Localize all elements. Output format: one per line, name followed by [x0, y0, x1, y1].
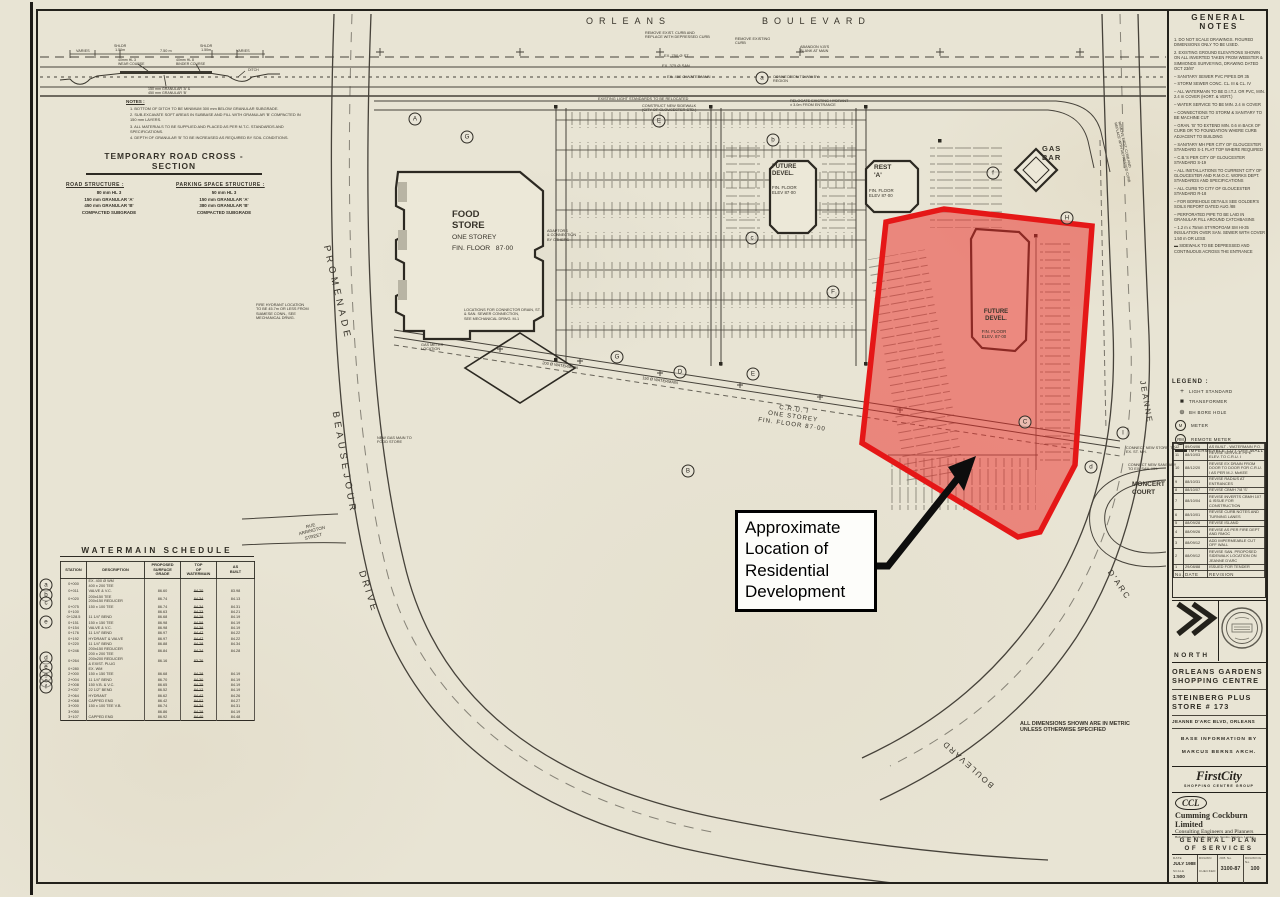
base-info-line2: MARCUS BERNS ARCH. — [1172, 750, 1266, 755]
watermain-cell: 86.16 — [145, 657, 181, 667]
revision-cell: 6 — [1174, 509, 1184, 520]
watermain-cell: 200x200 REDUCER & EXIST. PLUG — [87, 657, 145, 667]
scale-value: 1:500 — [1173, 874, 1185, 879]
watermain-cell — [145, 579, 181, 589]
watermain-cell: 3+107 — [61, 714, 87, 720]
legend-title: LEGEND : — [1172, 379, 1266, 385]
watermain-row: 0+020200x150 TEE 200x150 REDUCER86.7484.… — [61, 594, 255, 604]
revision-cell: 88/09/26 — [1184, 527, 1208, 538]
legend-label: METER — [1191, 423, 1208, 428]
legend-item: ■TRANSFORMER — [1175, 398, 1266, 405]
legend-label: LIGHT STANDARD — [1189, 389, 1233, 394]
title-block-fields: DATE JULY 1988 SCALE 1:500 DRAWN CHECKED… — [1172, 854, 1266, 883]
base-info-block: BASE INFORMATION BY MARCUS BERNS ARCH. — [1172, 728, 1266, 767]
revision-cell: REVISE AS PER FIRE DEPT AND RMOC — [1208, 527, 1265, 538]
revision-table-header: No.DATEREVISION — [1174, 571, 1265, 578]
firstcity-logo-block: FirstCity SHOPPING CENTRE GROUP — [1172, 766, 1266, 793]
revision-cell: 88/10/31 — [1184, 476, 1208, 487]
watermain-cell: 86.74 — [145, 594, 181, 604]
cross-section-note: 4. DEPTH OF GRANULAR 'B' TO BE INCREASED… — [130, 136, 308, 141]
watermain-cell: 84.24 — [181, 647, 217, 657]
revision-row: 788/10/04REVISE INVERTS CBMH 107 & ISSUE… — [1174, 494, 1265, 509]
north-arrow-icon — [1172, 601, 1218, 641]
watermain-cell — [217, 579, 255, 589]
watermain-schedule-header: STATIONDESCRIPTIONPROPOSED SURFACE GRADE… — [61, 562, 255, 579]
ccl-firm-block: CCL Cumming Cockburn Limited Consulting … — [1172, 792, 1266, 835]
cross-section-notes: 1. BOTTOM OF DITCH TO BE MINIMUM 300 mm … — [130, 107, 308, 143]
parking-structure-block: PARKING SPACE STRUCTURE : 50 mm HL 3 150… — [176, 182, 272, 216]
watermain-cell: 86.92 — [145, 714, 181, 720]
revision-cell: REVISE SERVICE PIPE ELEV. TO C.R.U. I — [1208, 450, 1265, 461]
legend-symbol-sq: ■ — [1175, 398, 1189, 405]
revision-row: 988/10/31REVISE RADIUS AT ENTRANCES — [1174, 476, 1265, 487]
legend-item: +LIGHT STANDARD — [1175, 388, 1266, 395]
watermain-row: 0+246200x150 REDUCER 200 x 200 TEE86.848… — [61, 647, 255, 657]
watermain-cell: 0+264 — [61, 657, 87, 667]
road-structure-block: ROAD STRUCTURE : 80 mm HL 3 150 mm GRANU… — [66, 182, 152, 216]
watermain-header-cell: STATION — [61, 562, 87, 579]
legend-item: ⊕BH BORE HOLE — [1175, 408, 1266, 416]
revision-cell: 88/10/04 — [1184, 494, 1208, 509]
project-title-block: ORLEANS GARDENS SHOPPING CENTRE STEINBER… — [1172, 662, 1266, 724]
revision-header-cell: DATE — [1184, 571, 1208, 578]
general-note-item: 1. DO NOT SCALE DRAWINGS. FIGURED DIMENS… — [1174, 37, 1266, 47]
general-note-item: – ALL INSTALLATIONS TO CURRENT CITY OF G… — [1174, 168, 1266, 184]
watermain-cell: EX. 400 Ø WM 400 x 200 TEE — [87, 579, 145, 589]
revision-cell: 2 — [1174, 549, 1184, 564]
revision-cell: 11 — [1174, 450, 1184, 461]
legend-symbol-bh: ⊕ — [1175, 408, 1189, 416]
revision-cell: 9 — [1174, 476, 1184, 487]
revision-cell: 3 — [1174, 538, 1184, 549]
revision-row: 688/10/01REVISE CURB NOTES AND TURNING L… — [1174, 509, 1265, 520]
firstcity-subtitle: SHOPPING CENTRE GROUP — [1172, 784, 1266, 788]
revision-row: 388/09/12ADD IMPERMEABLE CUT OFF WALL — [1174, 538, 1265, 549]
watermain-header-cell: AS BUILT — [217, 562, 255, 579]
drawing-number-value: 100 — [1244, 866, 1266, 872]
legend-label: BH BORE HOLE — [1189, 410, 1227, 415]
ccl-firm-name: Cumming Cockburn Limited — [1175, 811, 1266, 829]
watermain-cell: 200x150 TEE 200x150 REDUCER — [87, 594, 145, 604]
revision-table: 1289/04/06AS BUILT - WATERMAIN P.O.1188/… — [1172, 442, 1266, 598]
watermain-cell: CAPPED END — [87, 714, 145, 720]
cross-section-note: 1. BOTTOM OF DITCH TO BE MINIMUM 300 mm … — [130, 107, 308, 112]
watermain-header-cell: TOP OF WATERMAIN — [181, 562, 217, 579]
general-note-item: – SANITARY SEWER PVC PIPES DR 35 — [1174, 74, 1266, 79]
revision-cell: ADD IMPERMEABLE CUT OFF WALL — [1208, 538, 1265, 549]
revision-cell: 88/09/12 — [1184, 549, 1208, 564]
cross-section-title: TEMPORARY ROAD CROSS - SECTION — [86, 151, 262, 175]
general-note-item: – WATER SERVICE TO BE MIN. 2.4 m COVER — [1174, 102, 1266, 107]
panel-divider — [1167, 9, 1169, 884]
north-arrow-cell: NORTH — [1172, 601, 1218, 661]
revision-cell: REVISE SAN. PROPOSED SIDEWALK LOCATION O… — [1208, 549, 1265, 564]
revision-cell: REVISE CURB NOTES AND TURNING LANES — [1208, 509, 1265, 520]
watermain-schedule-table: STATIONDESCRIPTIONPROPOSED SURFACE GRADE… — [60, 561, 255, 721]
drawing-sheet: ORLEANSBOULEVARDPROMENADEBEAUSEJOURDRIVE… — [0, 0, 1280, 897]
project-address: JEANNE D'ARC BLVD, ORLEANS — [1172, 719, 1266, 724]
general-note-item: – C.B.'S PER CITY OF GLOUCESTER STANDARD… — [1174, 155, 1266, 165]
date-value: JULY 1988 — [1173, 861, 1196, 866]
watermain-cell: 200x150 REDUCER 200 x 200 TEE — [87, 647, 145, 657]
legend-symbol-plus: + — [1175, 388, 1189, 395]
cross-section-note: 2. SUB-EXCAVATE SOFT AREAS IN SUBBASE AN… — [130, 113, 308, 123]
cross-section-note: 3. ALL MATERIALS TO BE SUPPLIED AND PLAC… — [130, 125, 308, 135]
watermain-header-cell: DESCRIPTION — [87, 562, 145, 579]
engineer-stamp-icon — [1219, 601, 1265, 657]
legend-item: MMETER — [1175, 420, 1266, 431]
watermain-schedule-title: WATERMAIN SCHEDULE — [60, 546, 254, 557]
revision-row: 1088/12/20REVISE EX DRAIN FROM DOOR TO D… — [1174, 461, 1265, 476]
watermain-cell: 84.40 — [181, 714, 217, 720]
firstcity-logo: FirstCity — [1172, 769, 1266, 784]
general-note-item: – FOR BOREHOLE DETAILS SEE GOLDER'S SOIL… — [1174, 199, 1266, 209]
revision-row: 488/09/26REVISE AS PER FIRE DEPT AND RMO… — [1174, 527, 1265, 538]
ccl-logo: CCL — [1175, 796, 1207, 810]
project-store: STEINBERG PLUS STORE # 173 — [1172, 693, 1266, 712]
general-note-item: ▬ SIDEWALK TO BE DEPRESSED AND CONTINUOU… — [1174, 243, 1266, 253]
revision-cell: 88/09/12 — [1184, 538, 1208, 549]
general-note-item: – CONNECTIONS TO STORM & SANITARY TO BE … — [1174, 110, 1266, 120]
watermain-cell — [217, 657, 255, 667]
checked-label: CHECKED — [1199, 869, 1216, 873]
revision-cell: 4 — [1174, 527, 1184, 538]
revision-cell: 88/12/20 — [1184, 461, 1208, 476]
legend-symbol-circ: M — [1175, 420, 1186, 431]
general-note-item: – 1.2 m x 75mm STYROFOAM SM HI-35 INSULA… — [1174, 225, 1266, 241]
job-number-label: JOB No. — [1219, 856, 1232, 860]
watermain-row: 3+107CAPPED END86.9284.4084.48 — [61, 714, 255, 720]
road-structure-title: ROAD STRUCTURE : — [66, 182, 152, 188]
north-label: NORTH — [1174, 652, 1210, 659]
watermain-cell — [181, 579, 217, 589]
revision-cell: 88/10/03 — [1184, 450, 1208, 461]
watermain-cell: 86.84 — [145, 647, 181, 657]
parking-structure-lines: 50 mm HL 3 150 mm GRANULAR 'A' 380 mm GR… — [176, 190, 272, 216]
sheet-binding-edge — [30, 2, 33, 895]
general-note-item: – STORM SEWER CONC. CL. III & CL. IV — [1174, 81, 1266, 86]
watermain-header-cell: PROPOSED SURFACE GRADE — [145, 562, 181, 579]
north-arrow-box: NORTH — [1172, 600, 1266, 661]
base-info-line1: BASE INFORMATION BY — [1172, 737, 1266, 742]
watermain-schedule: WATERMAIN SCHEDULE STATIONDESCRIPTIONPRO… — [60, 546, 254, 721]
revision-header-cell: No. — [1174, 571, 1184, 578]
drawn-label: DRAWN — [1199, 856, 1212, 860]
engineer-stamp-cell — [1218, 601, 1266, 661]
revision-cell: REVISE RADIUS AT ENTRANCES — [1208, 476, 1265, 487]
scale-label: SCALE — [1173, 869, 1184, 873]
job-number-value: 3100-87 — [1218, 866, 1243, 872]
cross-section-notes-title: NOTES : — [126, 99, 145, 104]
annotation-callout: Approximate Location of Residential Deve… — [735, 510, 877, 612]
revision-cell: REVISE EX DRAIN FROM DOOR TO DOOR FOR C.… — [1208, 461, 1265, 476]
drawing-number-label: DRAWING No. — [1245, 856, 1266, 864]
project-name: ORLEANS GARDENS SHOPPING CENTRE — [1172, 667, 1266, 686]
legend-label: TRANSFORMER — [1189, 399, 1227, 404]
watermain-cell: 83.76 — [181, 657, 217, 667]
watermain-cell: 0+246 — [61, 647, 87, 657]
drawing-title-block: GENERAL PLAN OF SERVICES — [1172, 834, 1266, 855]
revision-cell: REVISE INVERTS CBMH 107 & ISSUE FOR CONS… — [1208, 494, 1265, 509]
watermain-row: 0+264200x200 REDUCER & EXIST. PLUG86.168… — [61, 657, 255, 667]
watermain-cell: 84.48 — [217, 714, 255, 720]
date-label: DATE — [1173, 856, 1182, 860]
general-note-item: 2. EXISTING GROUND ELEVATIONS SHOWN ON A… — [1174, 50, 1266, 71]
revision-cell: 7 — [1174, 494, 1184, 509]
revision-row: 1188/10/03REVISE SERVICE PIPE ELEV. TO C… — [1174, 450, 1265, 461]
general-notes-panel: GENERAL NOTES 1. DO NOT SCALE DRAWINGS. … — [1172, 13, 1266, 256]
general-note-item: – GRAN. 'B' TO EXTEND MIN. 0.6 m BACK OF… — [1174, 123, 1266, 139]
watermain-cell: 84.13 — [217, 594, 255, 604]
parking-structure-title: PARKING SPACE STRUCTURE : — [176, 182, 272, 188]
watermain-row: 0+000EX. 400 Ø WM 400 x 200 TEE — [61, 579, 255, 589]
general-note-item: – ALL CURB TO CITY OF GLOUCESTER STANDAR… — [1174, 186, 1266, 196]
revision-row: 288/09/12REVISE SAN. PROPOSED SIDEWALK L… — [1174, 549, 1265, 564]
revision-cell: 10 — [1174, 461, 1184, 476]
general-note-item: – PERFORATED PIPE TO BE LAID IN GRANULAR… — [1174, 212, 1266, 222]
general-note-item: – ALL WATERMAIN TO BE D.I.T.J. OR PVC, M… — [1174, 89, 1266, 99]
watermain-cell: 84.34 — [181, 594, 217, 604]
general-note-item: – SANITARY MH PER CITY OF GLOUCESTER STA… — [1174, 142, 1266, 152]
watermain-cell: 0+020 — [61, 594, 87, 604]
road-structure-lines: 80 mm HL 3 150 mm GRANULAR 'A' 450 mm GR… — [66, 190, 152, 216]
legend-label: REMOTE METER — [1191, 437, 1231, 442]
revision-cell: 88/10/01 — [1184, 509, 1208, 520]
general-notes-title: GENERAL NOTES — [1172, 13, 1266, 32]
watermain-cell: 0+000 — [61, 579, 87, 589]
revision-header-cell: REVISION — [1208, 571, 1265, 578]
watermain-cell: 84.28 — [217, 647, 255, 657]
drawing-title: GENERAL PLAN OF SERVICES — [1172, 837, 1266, 854]
